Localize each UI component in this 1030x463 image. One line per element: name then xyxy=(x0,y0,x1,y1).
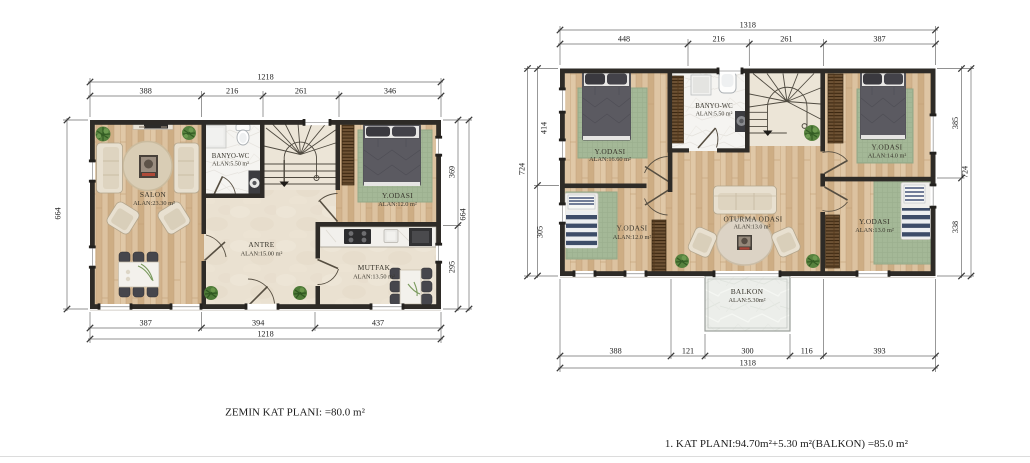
svg-text:121: 121 xyxy=(682,347,694,356)
svg-text:387: 387 xyxy=(873,35,885,44)
svg-text:ALAN:13.0 m²: ALAN:13.0 m² xyxy=(734,225,771,231)
svg-text:ANTRE: ANTRE xyxy=(248,240,274,249)
svg-text:116: 116 xyxy=(801,347,813,356)
svg-text:ALAN:13.0 m²: ALAN:13.0 m² xyxy=(855,227,894,234)
svg-text:385: 385 xyxy=(951,117,960,129)
svg-text:448: 448 xyxy=(618,35,630,44)
svg-text:664: 664 xyxy=(54,207,63,219)
svg-text:664: 664 xyxy=(459,208,468,220)
svg-text:ALAN:5.50 m²: ALAN:5.50 m² xyxy=(212,162,249,168)
svg-text:ALAN:15.00 m²: ALAN:15.00 m² xyxy=(241,251,283,258)
svg-text:Y.ODASI: Y.ODASI xyxy=(872,143,903,152)
svg-text:216: 216 xyxy=(712,35,724,44)
svg-text:ZEMIN KAT PLANI: =80.0 m²: ZEMIN KAT PLANI: =80.0 m² xyxy=(225,407,365,419)
svg-text:ALAN:23.30 m²: ALAN:23.30 m² xyxy=(133,200,175,207)
svg-text:261: 261 xyxy=(780,35,792,44)
svg-text:388: 388 xyxy=(609,347,621,356)
svg-text:437: 437 xyxy=(372,319,384,328)
svg-text:Y.ODASI: Y.ODASI xyxy=(595,147,626,156)
svg-text:1218: 1218 xyxy=(257,330,273,339)
svg-text:ALAN:12.0 m²: ALAN:12.0 m² xyxy=(613,234,652,241)
svg-text:Y.ODASI: Y.ODASI xyxy=(617,224,648,233)
svg-text:ALAN:5.30m²: ALAN:5.30m² xyxy=(728,297,765,304)
svg-text:ALAN:12.0 m²: ALAN:12.0 m² xyxy=(378,201,417,208)
svg-text:369: 369 xyxy=(448,166,457,178)
svg-text:Y.ODASI: Y.ODASI xyxy=(859,217,890,226)
svg-text:1. KAT PLANI:94.70m²+5.30 m²(B: 1. KAT PLANI:94.70m²+5.30 m²(BALKON) =85… xyxy=(665,438,909,450)
svg-text:OTURMA ODASI: OTURMA ODASI xyxy=(724,215,783,224)
svg-text:BANYO-WC: BANYO-WC xyxy=(212,153,250,160)
svg-text:393: 393 xyxy=(873,347,885,356)
svg-text:394: 394 xyxy=(252,319,264,328)
svg-text:724: 724 xyxy=(961,166,970,178)
svg-text:Y.ODASI: Y.ODASI xyxy=(382,191,413,200)
svg-text:305: 305 xyxy=(536,226,545,238)
svg-text:BALKON: BALKON xyxy=(731,287,764,296)
svg-text:387: 387 xyxy=(140,319,152,328)
svg-text:346: 346 xyxy=(384,87,396,96)
svg-text:388: 388 xyxy=(140,87,152,96)
svg-text:ALAN:13.50 m²: ALAN:13.50 m² xyxy=(353,274,395,281)
svg-text:1318: 1318 xyxy=(740,21,756,30)
svg-text:338: 338 xyxy=(951,221,960,233)
svg-text:414: 414 xyxy=(540,122,549,134)
svg-text:ALAN:5.50 m²: ALAN:5.50 m² xyxy=(696,112,733,118)
svg-text:1218: 1218 xyxy=(257,73,273,82)
svg-text:MUTFAK: MUTFAK xyxy=(358,263,391,272)
svg-text:300: 300 xyxy=(741,347,753,356)
svg-text:724: 724 xyxy=(518,163,527,175)
svg-text:295: 295 xyxy=(448,261,457,273)
svg-text:1318: 1318 xyxy=(740,359,756,368)
svg-text:261: 261 xyxy=(295,87,307,96)
svg-text:SALON: SALON xyxy=(140,190,166,199)
svg-text:BANYO-WC: BANYO-WC xyxy=(695,103,733,110)
svg-text:ALAN:14.0 m²: ALAN:14.0 m² xyxy=(868,153,907,160)
svg-text:ALAN:16.60 m²: ALAN:16.60 m² xyxy=(589,156,631,163)
svg-text:216: 216 xyxy=(226,87,238,96)
